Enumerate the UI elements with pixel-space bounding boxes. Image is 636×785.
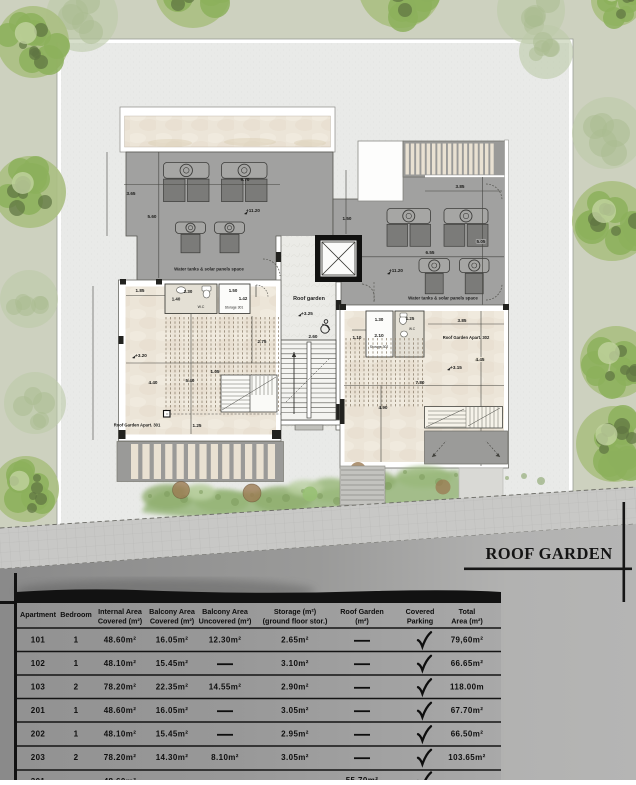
svg-text:103.65m²: 103.65m² bbox=[448, 753, 485, 762]
svg-text:Water tanks & solar panels spa: Water tanks & solar panels space bbox=[408, 296, 478, 301]
svg-text:1.30: 1.30 bbox=[375, 317, 384, 322]
svg-text:7.80: 7.80 bbox=[416, 380, 425, 385]
svg-text:5.40: 5.40 bbox=[186, 378, 195, 383]
svg-text:48.60m²: 48.60m² bbox=[104, 636, 137, 645]
svg-text:14.30m²: 14.30m² bbox=[156, 753, 189, 762]
svg-text:3.05m²: 3.05m² bbox=[281, 706, 309, 715]
svg-text:Parking: Parking bbox=[407, 617, 433, 626]
svg-text:48.60m²: 48.60m² bbox=[104, 706, 137, 715]
svg-text:22.35m²: 22.35m² bbox=[156, 683, 189, 692]
svg-text:201: 201 bbox=[31, 706, 46, 715]
svg-text:Storage 302: Storage 302 bbox=[370, 345, 389, 349]
svg-text:Internal Area: Internal Area bbox=[98, 607, 143, 616]
svg-text:5.05: 5.05 bbox=[477, 239, 486, 244]
svg-text:W.C: W.C bbox=[198, 305, 205, 309]
svg-text:2.95m²: 2.95m² bbox=[281, 730, 309, 739]
svg-text:(m²): (m²) bbox=[355, 617, 369, 626]
svg-text:101: 101 bbox=[31, 636, 46, 645]
svg-text:1.40: 1.40 bbox=[172, 297, 181, 302]
svg-text:15.45m²: 15.45m² bbox=[156, 659, 189, 668]
svg-text:Covered (m²): Covered (m²) bbox=[150, 617, 195, 626]
svg-text:Balcony Area: Balcony Area bbox=[149, 607, 196, 616]
svg-text:16.05m²: 16.05m² bbox=[156, 636, 189, 645]
svg-text:Bedroom: Bedroom bbox=[60, 610, 92, 619]
svg-text:+3.15: +3.15 bbox=[450, 365, 462, 370]
svg-text:202: 202 bbox=[31, 730, 46, 739]
svg-text:4.90: 4.90 bbox=[379, 405, 388, 410]
svg-text:3.65: 3.65 bbox=[127, 191, 136, 196]
svg-text:+3.25: +3.25 bbox=[301, 311, 313, 316]
svg-text:9.70: 9.70 bbox=[241, 177, 250, 182]
svg-text:(ground floor stor.): (ground floor stor.) bbox=[263, 617, 328, 626]
svg-text:Roof Garden: Roof Garden bbox=[340, 607, 384, 616]
svg-text:1.42: 1.42 bbox=[239, 296, 248, 301]
svg-text:14.55m²: 14.55m² bbox=[209, 683, 242, 692]
svg-text:118.00m: 118.00m bbox=[450, 683, 484, 692]
svg-text:66.50m²: 66.50m² bbox=[451, 730, 484, 739]
svg-text:+3.20: +3.20 bbox=[135, 353, 147, 358]
svg-text:48.10m²: 48.10m² bbox=[104, 730, 137, 739]
svg-text:3.85: 3.85 bbox=[456, 184, 465, 189]
svg-text:Uncovered (m²): Uncovered (m²) bbox=[199, 617, 252, 626]
svg-text:1: 1 bbox=[74, 706, 79, 715]
svg-text:203: 203 bbox=[31, 753, 46, 762]
svg-text:Storage 301: Storage 301 bbox=[225, 306, 244, 310]
svg-text:1.10: 1.10 bbox=[353, 335, 362, 340]
svg-text:1.25: 1.25 bbox=[406, 316, 415, 321]
svg-text:48.10m²: 48.10m² bbox=[104, 659, 137, 668]
svg-text:ROOF GARDEN: ROOF GARDEN bbox=[485, 544, 612, 563]
svg-text:4.40: 4.40 bbox=[149, 380, 158, 385]
svg-text:2: 2 bbox=[74, 683, 79, 692]
svg-text:8.10m²: 8.10m² bbox=[211, 753, 239, 762]
svg-text:3.05m²: 3.05m² bbox=[281, 753, 309, 762]
svg-text:Covered: Covered bbox=[406, 607, 435, 616]
svg-text:2.10: 2.10 bbox=[374, 333, 384, 339]
svg-text:2: 2 bbox=[74, 753, 79, 762]
svg-text:2.90m²: 2.90m² bbox=[281, 683, 309, 692]
svg-text:12.30m²: 12.30m² bbox=[209, 636, 242, 645]
svg-text:Roof Garden Apart. 302: Roof Garden Apart. 302 bbox=[443, 335, 490, 340]
svg-text:2.75: 2.75 bbox=[258, 339, 267, 344]
svg-text:103: 103 bbox=[31, 683, 46, 692]
svg-text:Water tanks & solar panels spa: Water tanks & solar panels space bbox=[174, 267, 244, 272]
svg-text:3.10m²: 3.10m² bbox=[281, 659, 309, 668]
svg-text:5.60: 5.60 bbox=[148, 214, 157, 219]
svg-text:1.25: 1.25 bbox=[193, 423, 202, 428]
svg-text:66.65m²: 66.65m² bbox=[451, 659, 484, 668]
svg-text:2.65m²: 2.65m² bbox=[281, 636, 309, 645]
svg-text:6.55: 6.55 bbox=[426, 250, 435, 255]
svg-text:+11.20: +11.20 bbox=[246, 208, 260, 213]
svg-text:+11.20: +11.20 bbox=[389, 268, 403, 273]
svg-text:16.05m²: 16.05m² bbox=[156, 706, 189, 715]
svg-text:2.30: 2.30 bbox=[184, 289, 193, 294]
svg-text:Apartment: Apartment bbox=[20, 610, 57, 619]
svg-text:79,60m²: 79,60m² bbox=[451, 636, 484, 645]
svg-text:4.45: 4.45 bbox=[476, 357, 485, 362]
svg-text:Balcony Area: Balcony Area bbox=[202, 607, 249, 616]
svg-text:55.70m²: 55.70m² bbox=[346, 776, 379, 780]
svg-text:67.70m²: 67.70m² bbox=[451, 706, 484, 715]
svg-text:W.C: W.C bbox=[409, 327, 416, 331]
svg-text:15.45m²: 15.45m² bbox=[156, 730, 189, 739]
svg-text:1.05: 1.05 bbox=[211, 369, 220, 374]
svg-text:102: 102 bbox=[31, 659, 46, 668]
svg-text:Roof garden: Roof garden bbox=[293, 296, 325, 302]
svg-text:3.85: 3.85 bbox=[458, 318, 467, 323]
svg-text:1.50: 1.50 bbox=[229, 288, 238, 293]
svg-text:78.20m²: 78.20m² bbox=[104, 683, 137, 692]
svg-text:78.20m²: 78.20m² bbox=[104, 753, 137, 762]
svg-text:1: 1 bbox=[74, 659, 79, 668]
svg-text:Roof Garden Apart. 301: Roof Garden Apart. 301 bbox=[114, 423, 161, 428]
svg-text:Total: Total bbox=[459, 607, 476, 616]
svg-text:Area (m²): Area (m²) bbox=[451, 617, 483, 626]
svg-text:Covered (m²): Covered (m²) bbox=[98, 617, 143, 626]
svg-text:Storage (m²): Storage (m²) bbox=[274, 607, 317, 616]
svg-text:1.85: 1.85 bbox=[136, 288, 145, 293]
svg-text:1: 1 bbox=[74, 636, 79, 645]
svg-text:1.50: 1.50 bbox=[343, 216, 352, 221]
svg-text:1: 1 bbox=[74, 730, 79, 739]
svg-text:2.60: 2.60 bbox=[309, 334, 318, 339]
